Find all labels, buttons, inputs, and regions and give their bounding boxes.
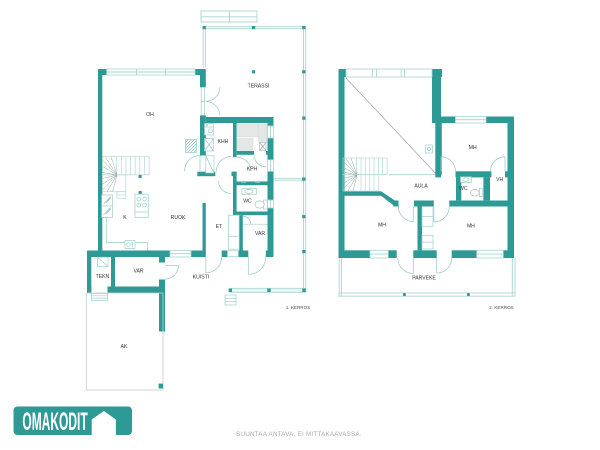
svg-text:K: K	[123, 215, 127, 221]
svg-text:TEKN: TEKN	[96, 274, 110, 280]
svg-text:WC: WC	[459, 186, 468, 192]
svg-text:VAR: VAR	[133, 268, 143, 274]
svg-text:KUISTI: KUISTI	[193, 274, 209, 280]
svg-text:VAR: VAR	[255, 231, 265, 237]
svg-text:AULA: AULA	[414, 183, 428, 189]
svg-text:MH: MH	[378, 222, 386, 228]
svg-text:AK: AK	[121, 344, 128, 350]
svg-text:ET: ET	[216, 224, 223, 230]
svg-text:TERASSI: TERASSI	[248, 83, 270, 89]
svg-text:OMAKODIT: OMAKODIT	[22, 408, 87, 436]
svg-text:PARVEKE: PARVEKE	[412, 276, 436, 282]
svg-text:WC: WC	[243, 199, 252, 205]
svg-text:KPH: KPH	[247, 166, 258, 172]
svg-text:OH: OH	[146, 112, 154, 118]
svg-text:MH: MH	[469, 145, 477, 151]
svg-text:RUOK: RUOK	[171, 215, 186, 221]
svg-text:2. KERROS: 2. KERROS	[489, 305, 514, 310]
svg-text:VH: VH	[496, 177, 503, 183]
svg-text:KHH: KHH	[218, 139, 229, 145]
svg-text:SUUNTAA ANTAVA, EI MITTAKAAVAS: SUUNTAA ANTAVA, EI MITTAKAAVASSA.	[236, 431, 362, 438]
svg-text:MH: MH	[467, 223, 475, 229]
svg-text:1. KERROS: 1. KERROS	[286, 305, 311, 310]
